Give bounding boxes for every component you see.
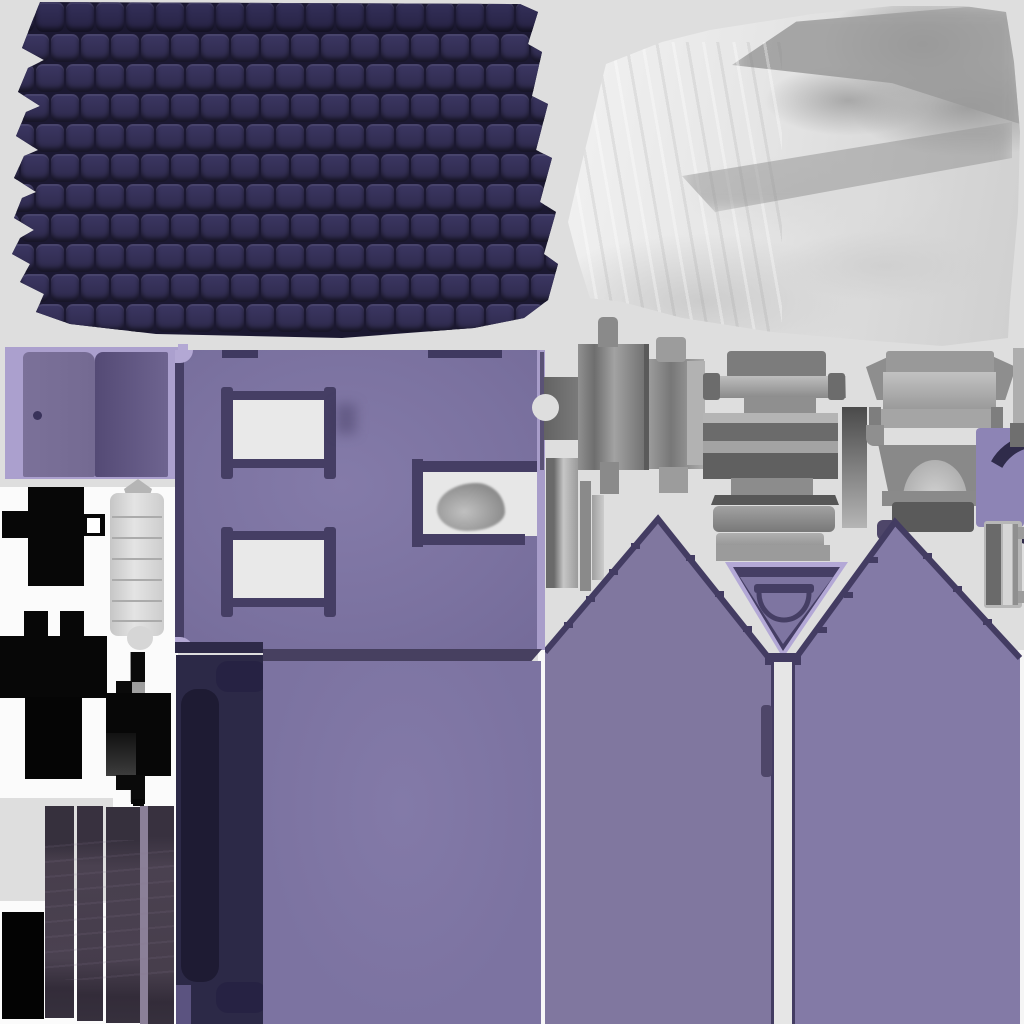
bracket-cross-arm-left [2, 511, 29, 538]
roof-tile [396, 304, 424, 332]
press1-cap-right [828, 373, 845, 400]
cloth-sheet [562, 2, 1024, 354]
cylinder-ridge-6 [112, 620, 162, 622]
cylinder-body [110, 493, 164, 636]
roof-tile [351, 94, 379, 122]
roof-tile [381, 154, 409, 182]
roof-tile [0, 94, 19, 122]
press1-block [744, 397, 816, 414]
window1-rail-bottom [222, 459, 336, 468]
wall-top-dash-2 [428, 350, 502, 358]
roof-tile [441, 214, 469, 242]
roof-tile [471, 94, 499, 122]
roof-tile [0, 34, 19, 62]
cylinder-ridge-3 [112, 558, 162, 560]
roof-tile [336, 184, 364, 212]
roof-tile [261, 154, 289, 182]
roof-tile [96, 64, 124, 92]
roof-tile [126, 124, 154, 152]
roof-tile [366, 64, 394, 92]
beam-navy-cap-bottom [216, 982, 267, 1013]
roof-tile [126, 64, 154, 92]
roof-tile [576, 2, 604, 32]
roof-tile [141, 94, 169, 122]
roof-tile [516, 2, 544, 32]
roof-tile [186, 184, 214, 212]
press1-slab-stack [703, 413, 838, 479]
roof-tile [201, 34, 229, 62]
roof-tile [366, 304, 394, 332]
roof-tile [231, 94, 259, 122]
window1-post-right [324, 387, 336, 479]
window2-post-left [221, 527, 233, 617]
edge-sliver [1013, 348, 1024, 430]
roof-tile [456, 64, 484, 92]
roof-tile [516, 244, 544, 272]
roof-tile [291, 34, 319, 62]
roof-tile [51, 274, 79, 302]
roof-tile [81, 214, 109, 242]
roof-tile [171, 274, 199, 302]
roof-tile [321, 274, 349, 302]
roof-tile [246, 124, 274, 152]
roof-tile [276, 64, 304, 92]
floor-panel [263, 661, 541, 1024]
roof-tile [546, 124, 574, 152]
roof-tile [6, 184, 34, 212]
roof-tile [81, 154, 109, 182]
roof-tile [231, 34, 259, 62]
roof-tile [36, 64, 64, 92]
roof-tile [501, 94, 529, 122]
wall-uv-chip [178, 344, 188, 351]
roof-tile [336, 304, 364, 332]
window1-shadow [336, 404, 356, 434]
roof-tile [516, 124, 544, 152]
door-knob [33, 411, 42, 420]
roof-tile [126, 244, 154, 272]
roof-tile [561, 94, 589, 122]
roof-tile [36, 184, 64, 212]
beam-navy-cap-top [216, 661, 267, 692]
roof-tile [396, 244, 424, 272]
roof-tile [441, 154, 469, 182]
roof-tile [276, 244, 304, 272]
roof-tile [546, 244, 574, 272]
window2-rail-bottom [222, 598, 336, 607]
roof-tile [546, 304, 574, 332]
roof-tile [6, 2, 34, 32]
roof-tile [261, 214, 289, 242]
roof-tile [441, 274, 469, 302]
roof-tile [126, 304, 154, 332]
roof-tile [321, 34, 349, 62]
roof-tile [0, 274, 19, 302]
press1-top-block [727, 351, 826, 379]
machine-clamp-notch [532, 394, 559, 421]
cylinder-ridge-5 [112, 600, 162, 602]
roof-tile [6, 124, 34, 152]
roof-tile [231, 154, 259, 182]
window2-opening [233, 540, 324, 598]
roof-tile [426, 304, 454, 332]
roof-tile [111, 274, 139, 302]
cylinder-knob [127, 626, 153, 650]
roof-tile [21, 34, 49, 62]
roof-tile [51, 94, 79, 122]
wall-notch-bottom-rail [423, 534, 525, 545]
roof-tile [186, 2, 214, 32]
roof-tile [291, 214, 319, 242]
hinge-block-shade [106, 733, 136, 776]
roof-tile [261, 34, 289, 62]
roof-tile [141, 34, 169, 62]
roof-tile [306, 244, 334, 272]
roof-tile [396, 124, 424, 152]
roof-tile [186, 124, 214, 152]
roof-tile [546, 64, 574, 92]
black-square-part [2, 912, 44, 1019]
roof-tile [36, 244, 64, 272]
roof-tile [141, 154, 169, 182]
bracket-tab-1 [24, 611, 48, 638]
roof-tile [261, 94, 289, 122]
bracket-tab-2 [60, 611, 84, 638]
roof-tile [156, 64, 184, 92]
roof-tile [486, 244, 514, 272]
press1-rail [704, 376, 846, 398]
bracket-stem [25, 697, 82, 779]
roof-tile [276, 124, 304, 152]
roof-tile [246, 64, 274, 92]
roof-tile [201, 274, 229, 302]
roof-tile [186, 304, 214, 332]
cylinder-ridge-2 [112, 537, 162, 539]
roof-tile [456, 2, 484, 32]
roof-tile [486, 184, 514, 212]
roof-tile [66, 184, 94, 212]
roof-tile [246, 2, 274, 32]
roof-tile [21, 94, 49, 122]
roof-tile [366, 2, 394, 32]
roof-tile [441, 34, 469, 62]
roof-tile [456, 244, 484, 272]
roof-tile [51, 34, 79, 62]
roof-tile [381, 94, 409, 122]
hinge-tab-bottom [116, 775, 132, 790]
roof-shingles [6, 2, 558, 340]
machine-stack1-tab-bottom [600, 462, 619, 494]
roof-tile [201, 154, 229, 182]
hinge-top-pin [131, 652, 145, 682]
roof-tile [111, 34, 139, 62]
roof-tile [171, 94, 199, 122]
roof-tile [456, 124, 484, 152]
roof-tile [321, 214, 349, 242]
cylinder-ridge-1 [112, 516, 162, 518]
roof-tile [426, 2, 454, 32]
house-texture-atlas [0, 0, 1024, 1024]
roof-tile [6, 64, 34, 92]
roof-tile [351, 214, 379, 242]
roof-tile [96, 2, 124, 32]
roof-tile [261, 274, 289, 302]
press1-thin-rail [711, 495, 839, 505]
plank-tick [133, 799, 144, 806]
roof-tile [501, 34, 529, 62]
roof-tile [306, 124, 334, 152]
roof-tile [471, 154, 499, 182]
press2-notch-right [991, 407, 1003, 430]
roof-tile [546, 184, 574, 212]
wall-left-edge-strip [175, 357, 184, 641]
bracket-base [0, 636, 107, 698]
roof-tile [216, 124, 244, 152]
roof-tile [531, 94, 559, 122]
roof-tile [291, 94, 319, 122]
roof-tile [351, 154, 379, 182]
roof-tile [21, 274, 49, 302]
wood-grain-overlay [45, 840, 174, 980]
roof-tile [156, 124, 184, 152]
roof-tile [516, 64, 544, 92]
roof-tile [6, 304, 34, 332]
roof-tile [246, 244, 274, 272]
press2-rail [869, 409, 1003, 428]
wall-notch-top-rail [423, 461, 545, 472]
roof-tile [396, 184, 424, 212]
roof-tile [501, 154, 529, 182]
roof-tile [336, 124, 364, 152]
roof-tile [351, 274, 379, 302]
roof-tile [216, 244, 244, 272]
roof-tile [201, 214, 229, 242]
wall-notch-blob [437, 483, 505, 531]
press2-band [883, 372, 996, 412]
roof-tile [96, 244, 124, 272]
roof-tile [561, 34, 589, 62]
roof-tile [36, 2, 64, 32]
roof-tile [471, 34, 499, 62]
roof-tile [486, 304, 514, 332]
roof-tile [546, 2, 574, 32]
roof-tile [426, 244, 454, 272]
roof-tile [501, 274, 529, 302]
machine-stack2-tab-top [656, 337, 686, 362]
roof-tile [456, 184, 484, 212]
press2-hook [866, 425, 884, 446]
roof-tile [531, 154, 559, 182]
roof-tile [351, 34, 379, 62]
roof-tile [501, 214, 529, 242]
roof-tile [216, 184, 244, 212]
roof-tile [21, 214, 49, 242]
roof-tile [51, 214, 79, 242]
roof-tile [231, 274, 259, 302]
roof-tile [486, 64, 514, 92]
roof-tile [246, 304, 274, 332]
roof-tile [156, 184, 184, 212]
roof-tile [66, 304, 94, 332]
window2-post-right [324, 527, 336, 617]
roof-tile [66, 124, 94, 152]
roof-tile [336, 64, 364, 92]
roof-tile [411, 274, 439, 302]
roof-tile [366, 184, 394, 212]
machine-stack1 [578, 344, 644, 470]
roof-tile [471, 274, 499, 302]
roof-tile [51, 154, 79, 182]
roof-tile [201, 94, 229, 122]
roof-tile [321, 94, 349, 122]
roof-tile [366, 124, 394, 152]
roof-tile [291, 154, 319, 182]
roof-tile [336, 244, 364, 272]
roof-tile [21, 154, 49, 182]
beam-navy-inner [181, 689, 219, 982]
roof-tile [531, 214, 559, 242]
roof-tile [276, 2, 304, 32]
roof-tile [111, 154, 139, 182]
roof-tile [66, 2, 94, 32]
roof-tile [306, 304, 334, 332]
door-face-shaded [95, 352, 168, 477]
machine-stack2-tab-bottom [659, 467, 688, 493]
roof-tile [471, 214, 499, 242]
window1-post-left [221, 387, 233, 479]
roof-tile [81, 94, 109, 122]
gable-front [545, 505, 1024, 1024]
roof-tile [111, 214, 139, 242]
wall-bottom-bar [175, 642, 263, 653]
roof-tile [186, 244, 214, 272]
roof-tile [171, 154, 199, 182]
press1-cap-left [703, 373, 720, 400]
roof-tile [456, 304, 484, 332]
roof-tile [396, 64, 424, 92]
roof-tile [381, 214, 409, 242]
roof-tile [516, 184, 544, 212]
roof-tile [531, 274, 559, 302]
roof-tile [81, 34, 109, 62]
roof-tile [486, 124, 514, 152]
roof-tile [411, 214, 439, 242]
bracket-cross-body [28, 487, 84, 586]
roof-tile [231, 214, 259, 242]
roof-tile [411, 34, 439, 62]
roof-tile [276, 304, 304, 332]
roof-tile [366, 244, 394, 272]
roof-tile [36, 304, 64, 332]
roof-tile [141, 274, 169, 302]
roof-tile [426, 64, 454, 92]
roof-tile [0, 154, 19, 182]
roof-tile [96, 184, 124, 212]
roof-tile [381, 274, 409, 302]
roof-tile [396, 2, 424, 32]
roof-tile [411, 154, 439, 182]
wall-notch-post [412, 459, 423, 547]
roof-tile [171, 214, 199, 242]
roof-tile [411, 94, 439, 122]
roof-tile [531, 34, 559, 62]
roof-tile [81, 274, 109, 302]
press2-top-slab [886, 351, 994, 374]
roof-tile [336, 2, 364, 32]
roof-tile [96, 124, 124, 152]
roof-tile [306, 64, 334, 92]
roof-tile [126, 184, 154, 212]
roof-tile [96, 304, 124, 332]
roof-tile [66, 244, 94, 272]
roof-tile [126, 2, 154, 32]
window1-opening [233, 400, 324, 459]
roof-tile [321, 154, 349, 182]
roof-tile [216, 304, 244, 332]
roof-tile [66, 64, 94, 92]
roof-tile [306, 184, 334, 212]
roof-tile [156, 304, 184, 332]
roof-tile [291, 274, 319, 302]
press1-small-block [731, 478, 813, 496]
bracket-cross-hole [87, 518, 100, 533]
roof-tile [381, 34, 409, 62]
roof-tile [36, 124, 64, 152]
roof-tile [156, 2, 184, 32]
roof-tile [426, 184, 454, 212]
beam-navy-foot [176, 985, 191, 1024]
roof-tile [486, 2, 514, 32]
roof-tile [171, 34, 199, 62]
window1-rail-top [222, 391, 336, 400]
roof-tile [516, 304, 544, 332]
roof-tile [216, 2, 244, 32]
roof-tile [276, 184, 304, 212]
roof-tile [6, 244, 34, 272]
roof-tile [426, 124, 454, 152]
roof-tile [246, 184, 274, 212]
wall-top-dash-1 [222, 350, 258, 358]
roof-tile [441, 94, 469, 122]
roof-tile [156, 244, 184, 272]
window2-rail-top [222, 531, 336, 540]
roof-tile [111, 94, 139, 122]
roof-tile [216, 64, 244, 92]
roof-tile [141, 214, 169, 242]
roof-tile [0, 214, 19, 242]
edge-tab [1010, 423, 1024, 447]
cylinder-ridge-4 [112, 579, 162, 581]
roof-tile [306, 2, 334, 32]
machine-stack1-tab-top [598, 317, 618, 347]
roof-tile [186, 64, 214, 92]
roof-tile [576, 64, 604, 92]
